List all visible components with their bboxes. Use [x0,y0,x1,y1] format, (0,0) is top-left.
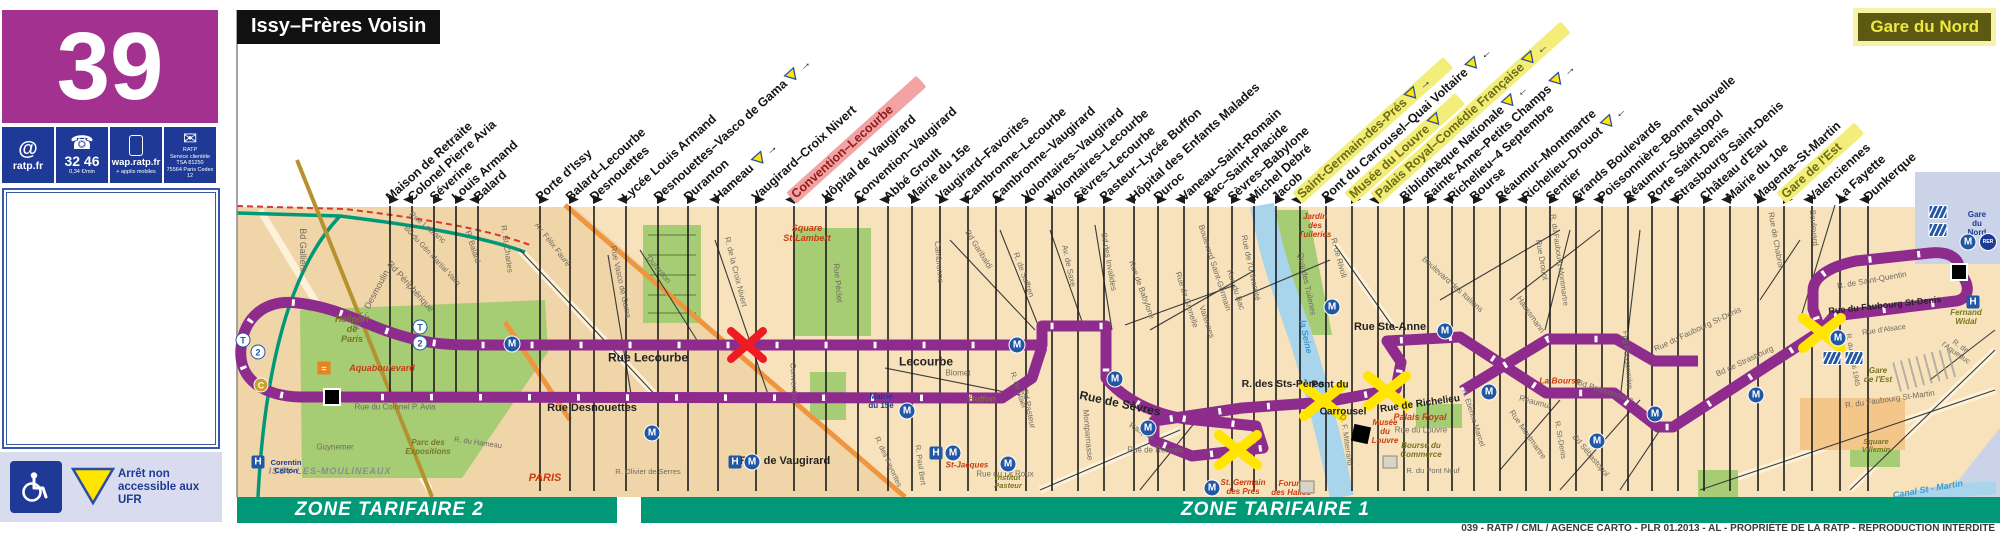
metro-icon: M [1437,323,1454,340]
map-label: Aquaboulevard [349,364,415,374]
tram-2-icon: 2 [251,345,266,360]
metro-icon: M [1324,299,1341,316]
hospital-icon: H [1967,296,1980,309]
bus-line-map: 39 @ ratp.fr ☎ 32 46 0,34 €/min wap.ratp… [0,0,2000,535]
rer-c-icon: C [254,378,269,393]
metro-icon: M [504,336,521,353]
hospital-icon: H [930,447,943,460]
map-label: Lecourbe [899,355,953,368]
metro-icon: M [1647,406,1664,423]
terminus-end-label: Gare du Nord [1858,13,1991,41]
map-label: Mairie du 15e [868,393,893,411]
map-label: Guynemer [316,444,353,453]
metro-icon: M [1589,433,1606,450]
metro-icon: M [644,425,661,442]
map-label: Boulevard [1807,210,1819,247]
zone-2-band: ZONE TARIFAIRE 2 [237,497,617,523]
map-label: Rue de Rennes [1127,447,1183,456]
map-label: Parc des Expositions [405,439,450,457]
hospital-icon: H [252,456,265,469]
tram-t-icon: T [236,333,251,348]
map-label: R. du Pont Neuf [1406,467,1459,475]
building-icon [1300,481,1315,494]
metro-icon: M [1107,371,1124,388]
metro-icon: M [945,445,962,462]
map-label: Rue Lecourbe [608,351,688,364]
train-station-icon [1929,205,1948,219]
metro-icon: M [1481,384,1498,401]
aquaboulevard-icon: ≈ [318,362,331,375]
hospital-icon: H [729,456,742,469]
copyright-attribution: 039 - RATP / CML / AGENCE CARTO - PLR 01… [237,523,1995,535]
metro-icon: M [1009,337,1026,354]
tram-t-icon: T [413,320,428,335]
train-station-icon [1845,351,1864,365]
map-label: Corentin Celton [271,459,302,476]
map-label: PARIS [529,472,562,484]
map-label: R. Olivier de Serres [615,468,680,476]
rer-icon: RER [1979,233,1997,251]
map-label: Bd Galliéni [297,228,307,272]
map-label: Blomet [946,370,971,379]
terminus-end-box: Gare du Nord [1853,8,1996,46]
map-label: Square St-Lambert [783,224,831,244]
metro-icon: M [1140,420,1157,437]
metro-icon: M [744,454,761,471]
metro-icon: M [1830,330,1847,347]
tram-2-icon: 2 [413,336,428,351]
map-label: Square Villemin [1862,438,1890,455]
map-label: Héliport de Paris [335,315,369,345]
metro-icon: M [1000,456,1017,473]
map-area: Issy–Frères Voisin Gare du Nord Maison d… [222,0,2000,535]
fare-zone-band: ZONE TARIFAIRE 2 ZONE TARIFAIRE 1 [237,497,2000,523]
zone-1-band: ZONE TARIFAIRE 1 [641,497,2000,523]
map-label: Buffon [968,394,995,403]
map-label: Rue Ste-Anne [1354,321,1426,333]
metro-icon: M [899,403,916,420]
map-label: Rue du Colonel P. Avia [354,404,435,413]
map-label: Institut Pasteur [994,474,1022,491]
map-label: Rue Desnouettes [547,402,637,414]
terminus-start-box: Issy–Frères Voisin [237,10,440,44]
building-icon [1383,456,1398,469]
map-label: Palais Royal [1393,413,1446,423]
map-label: Pont du [1311,380,1348,391]
map-label: Rue du Louvre [1395,427,1447,436]
map-label: La Bourse [1539,376,1581,385]
map-label: Jardin des Tuileries [1299,213,1332,239]
train-station-icon [1929,223,1948,237]
metro-icon: M [1748,387,1765,404]
zone-1-label: ZONE TARIFAIRE 1 [1181,499,1370,521]
metro-icon: M [1204,480,1221,497]
map-label: Bourse du Commerce [1400,442,1441,460]
metro-icon: M [1960,234,1977,251]
map-label: Convention [788,363,799,404]
louvre-museum-marker [1351,424,1371,444]
train-station-icon [1823,351,1842,365]
zone-2-label: ZONE TARIFAIRE 2 [295,499,484,521]
map-label: Gare de l'Est [1864,367,1892,385]
map-label: Fernand Widal [1950,309,1982,327]
map-label: St. Germain des Prés [1221,479,1266,497]
